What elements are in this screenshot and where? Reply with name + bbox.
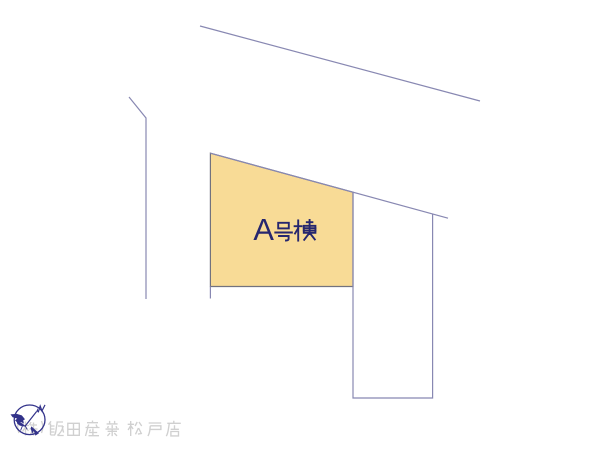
svg-text:A: A (253, 212, 274, 247)
